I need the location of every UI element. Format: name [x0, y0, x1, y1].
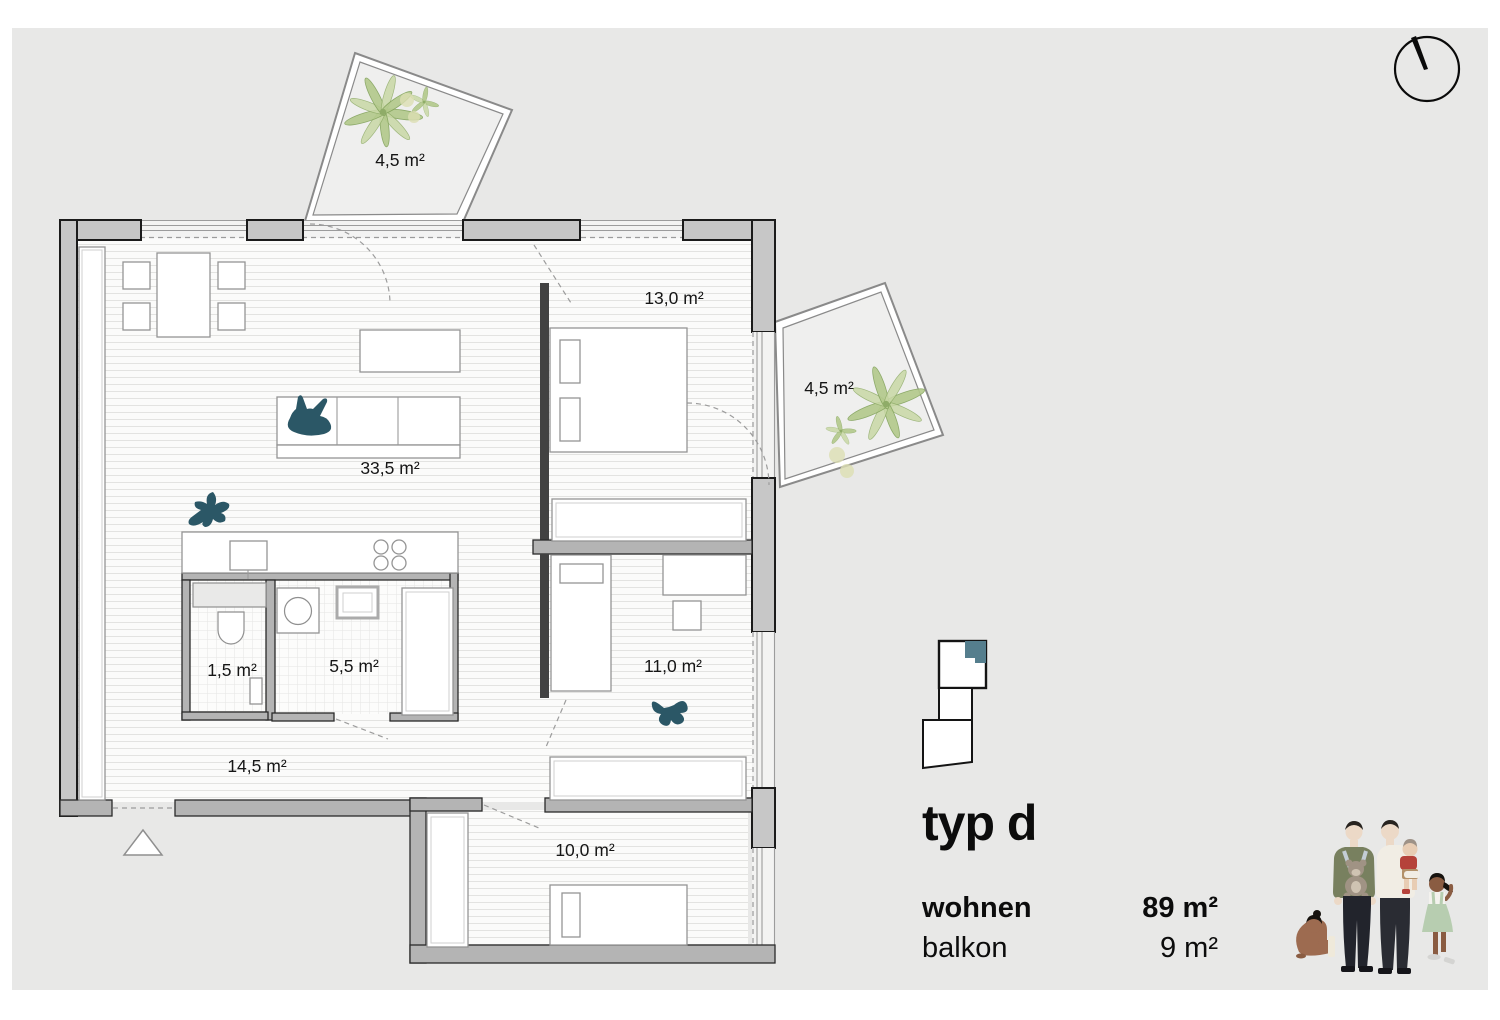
legend-value-balkon: 9 m²: [1160, 932, 1218, 965]
type-legend: typ d wohnen 89 m² balkon 9 m²: [922, 794, 1218, 965]
room-label-balcony-right: 4,5 m²: [804, 378, 854, 398]
room-label-wc: 1,5 m²: [207, 660, 257, 680]
room-label-living: 33,5 m²: [360, 458, 419, 478]
legend-label-wohnen: wohnen: [922, 892, 1032, 925]
legend-value-wohnen: 89 m²: [1142, 892, 1218, 925]
room-label-bath: 5,5 m²: [329, 656, 379, 676]
type-title: typ d: [922, 794, 1218, 852]
floor-plan-canvas: 4,5 m² 4,5 m²: [0, 0, 1500, 1020]
room-label-balcony-top: 4,5 m²: [375, 150, 425, 170]
toilet-icon: [218, 612, 244, 644]
washing-machine-icon: [277, 588, 319, 633]
legend-label-balkon: balkon: [922, 932, 1007, 965]
floorplan-sheet: 4,5 m² 4,5 m²: [0, 0, 1500, 1020]
room-label-bedroom: 13,0 m²: [644, 288, 703, 308]
room-label-kids-room: 11,0 m²: [644, 656, 702, 676]
legend-row-balkon: balkon 9 m²: [922, 932, 1218, 965]
room-label-hall: 14,5 m²: [227, 756, 286, 776]
shower-icon: [402, 588, 453, 715]
legend-row-wohnen: wohnen 89 m²: [922, 892, 1218, 925]
room-label-bottom-room: 10,0 m²: [555, 840, 614, 860]
left-wall-wardrobe: [79, 247, 105, 800]
